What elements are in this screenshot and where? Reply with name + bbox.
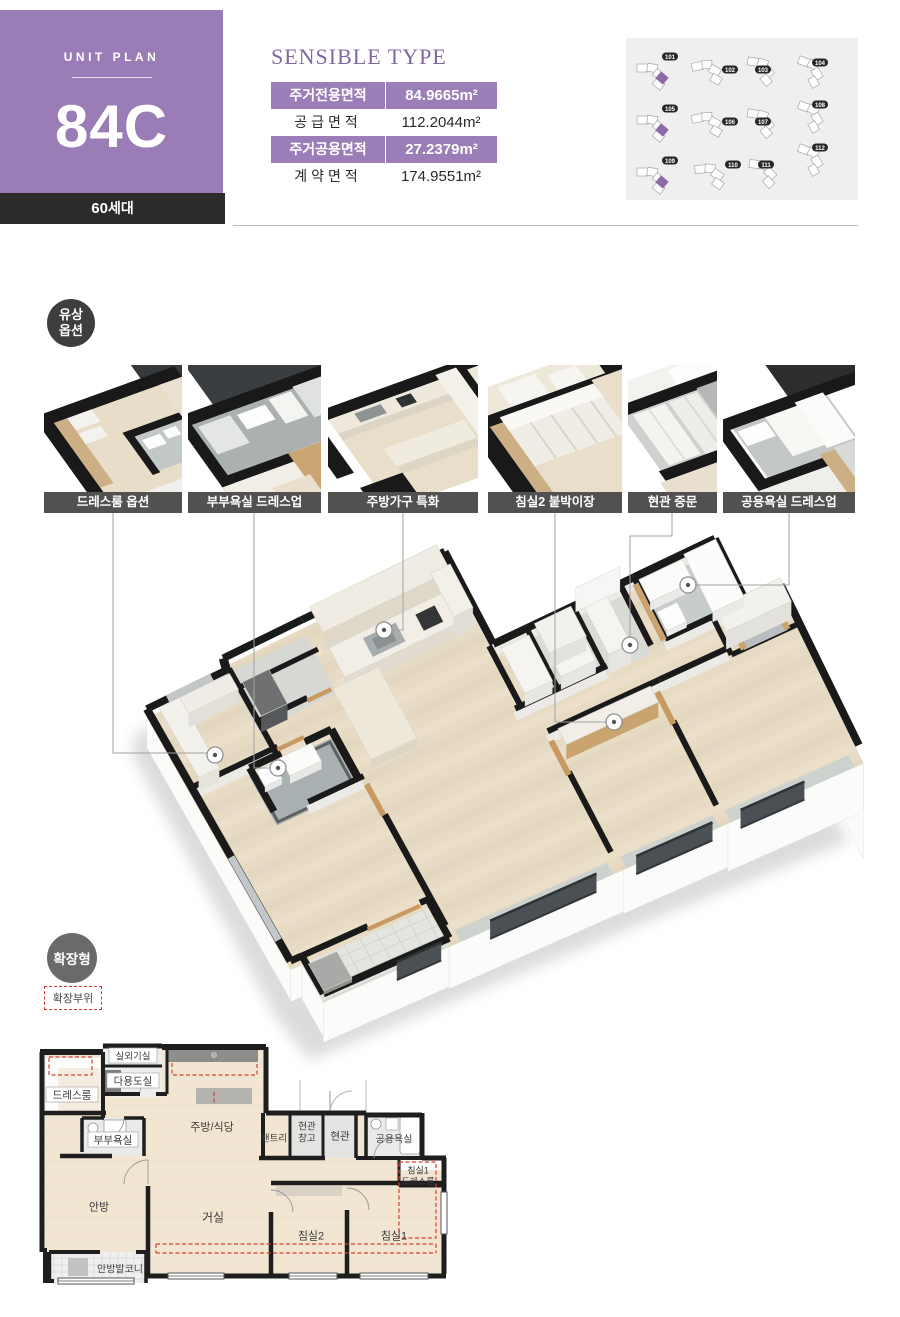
svg-text:부부욕실: 부부욕실 — [94, 1135, 133, 1147]
svg-text:드레스룸: 드레스룸 — [401, 1177, 434, 1187]
svg-text:현관: 현관 — [298, 1122, 316, 1133]
svg-text:안방: 안방 — [89, 1201, 109, 1214]
svg-text:드레스룸: 드레스룸 — [53, 1090, 92, 1102]
svg-text:실외기실: 실외기실 — [116, 1051, 151, 1063]
svg-text:공용욕실: 공용욕실 — [376, 1134, 413, 1146]
svg-text:팬트리: 팬트리 — [261, 1134, 287, 1145]
svg-text:안방발코니: 안방발코니 — [97, 1264, 143, 1276]
svg-text:침실1: 침실1 — [407, 1166, 429, 1176]
svg-text:침실2: 침실2 — [298, 1230, 324, 1243]
svg-text:다용도실: 다용도실 — [114, 1076, 153, 1088]
svg-text:주방/식당: 주방/식당 — [190, 1121, 234, 1134]
svg-text:거실: 거실 — [202, 1211, 224, 1225]
svg-text:창고: 창고 — [298, 1134, 316, 1145]
svg-text:현관: 현관 — [330, 1131, 350, 1143]
svg-text:침실1: 침실1 — [381, 1230, 407, 1243]
